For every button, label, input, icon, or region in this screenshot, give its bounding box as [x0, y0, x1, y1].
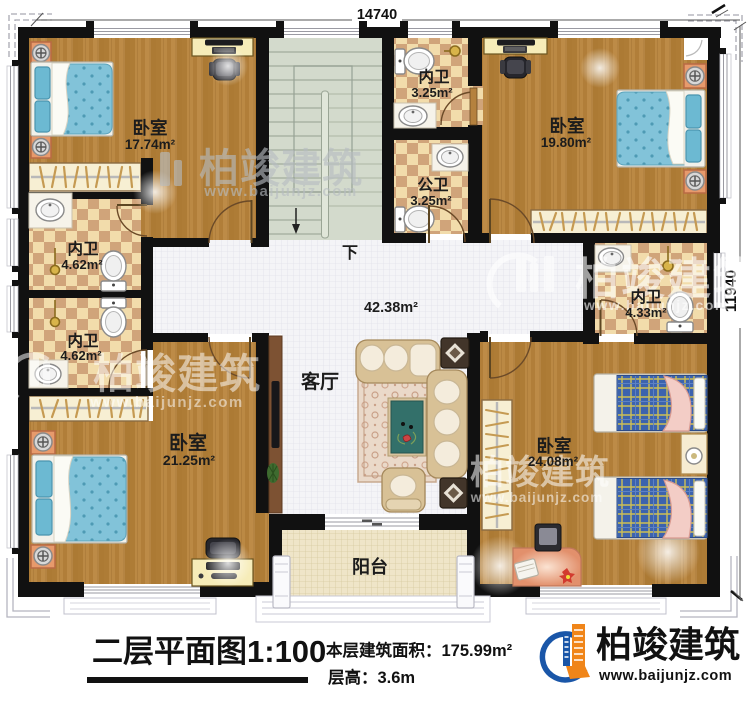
svg-text:柏竣建筑: 柏竣建筑: [596, 624, 740, 665]
svg-text:42.38m²: 42.38m²: [364, 300, 418, 316]
svg-text:4.62m²: 4.62m²: [60, 348, 102, 363]
svg-text:4.62m²: 4.62m²: [61, 257, 103, 272]
svg-text:4.33m²: 4.33m²: [625, 305, 667, 320]
svg-text:卧室: 卧室: [133, 118, 168, 138]
svg-text:3.25m²: 3.25m²: [411, 85, 453, 100]
svg-text:内卫: 内卫: [67, 239, 99, 258]
svg-text:24.08m²: 24.08m²: [528, 454, 579, 469]
svg-text:14740: 14740: [357, 7, 397, 23]
svg-text:19.80m²: 19.80m²: [541, 135, 592, 150]
svg-text:公卫: 公卫: [417, 176, 449, 194]
svg-text:21.25m²: 21.25m²: [163, 452, 215, 468]
svg-text:柏竣建筑: 柏竣建筑: [93, 351, 261, 397]
svg-text:二层平面图1:100: 二层平面图1:100: [92, 634, 326, 669]
svg-text:层高：3.6m: 层高：3.6m: [328, 667, 415, 687]
svg-text:卧室: 卧室: [537, 436, 572, 456]
svg-text:17.74m²: 17.74m²: [125, 137, 176, 152]
svg-text:www.baijunjz.com: www.baijunjz.com: [598, 668, 732, 684]
svg-text:卧室: 卧室: [550, 116, 585, 136]
svg-text:内卫: 内卫: [418, 67, 450, 86]
svg-text:卧室: 卧室: [169, 431, 207, 454]
svg-text:本层建筑面积：175.99m²: 本层建筑面积：175.99m²: [326, 640, 513, 660]
svg-text:下: 下: [342, 245, 358, 262]
svg-text:www.baijunjz.com: www.baijunjz.com: [203, 183, 357, 200]
svg-text:客厅: 客厅: [301, 370, 339, 393]
svg-text:内卫: 内卫: [630, 287, 662, 306]
svg-text:3.25m²: 3.25m²: [410, 193, 452, 208]
svg-text:www.baijunjz.com: www.baijunjz.com: [470, 490, 604, 505]
svg-text:阳台: 阳台: [352, 556, 388, 577]
svg-text:www.baijunjz.com: www.baijunjz.com: [89, 394, 243, 411]
